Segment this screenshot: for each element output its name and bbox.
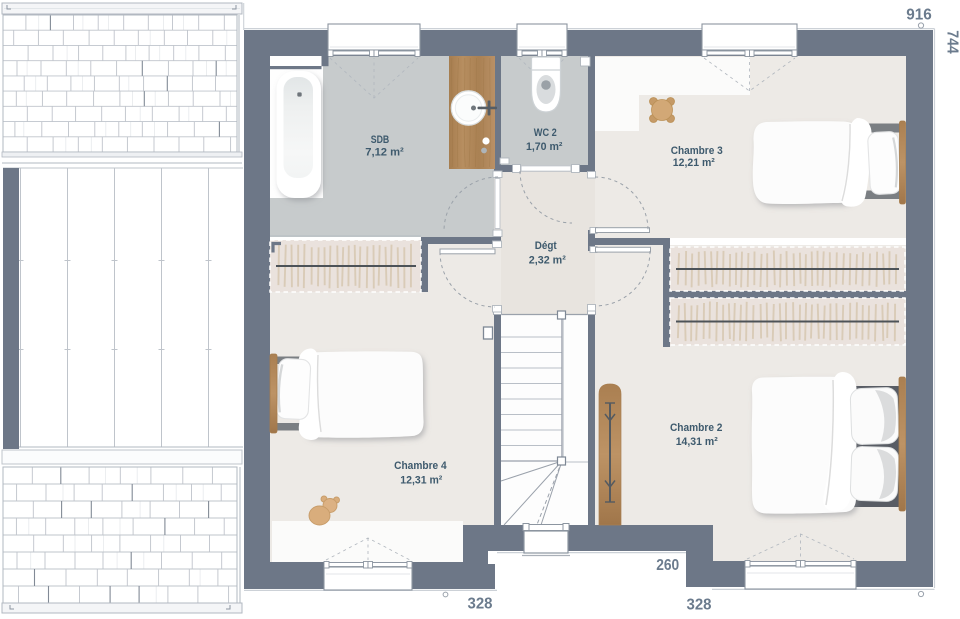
- svg-text:WC 2: WC 2: [534, 127, 557, 139]
- svg-text:Chambre 3: Chambre 3: [671, 145, 723, 157]
- svg-text:7,12 m²: 7,12 m²: [365, 147, 404, 159]
- svg-text:14,31 m²: 14,31 m²: [676, 436, 718, 448]
- svg-text:260: 260: [656, 557, 679, 574]
- svg-text:1,70 m²: 1,70 m²: [526, 141, 563, 153]
- svg-text:328: 328: [468, 596, 493, 613]
- svg-text:12,21 m²: 12,21 m²: [673, 157, 715, 169]
- svg-text:328: 328: [687, 597, 712, 614]
- svg-text:744: 744: [944, 30, 960, 54]
- svg-text:Chambre 4: Chambre 4: [394, 460, 447, 472]
- svg-text:Chambre 2: Chambre 2: [670, 422, 723, 434]
- svg-text:Dégt: Dégt: [535, 240, 557, 252]
- svg-text:2,32 m²: 2,32 m²: [529, 255, 566, 267]
- svg-text:12,31 m²: 12,31 m²: [400, 475, 442, 487]
- svg-text:SDB: SDB: [371, 134, 390, 146]
- svg-text:916: 916: [906, 7, 932, 24]
